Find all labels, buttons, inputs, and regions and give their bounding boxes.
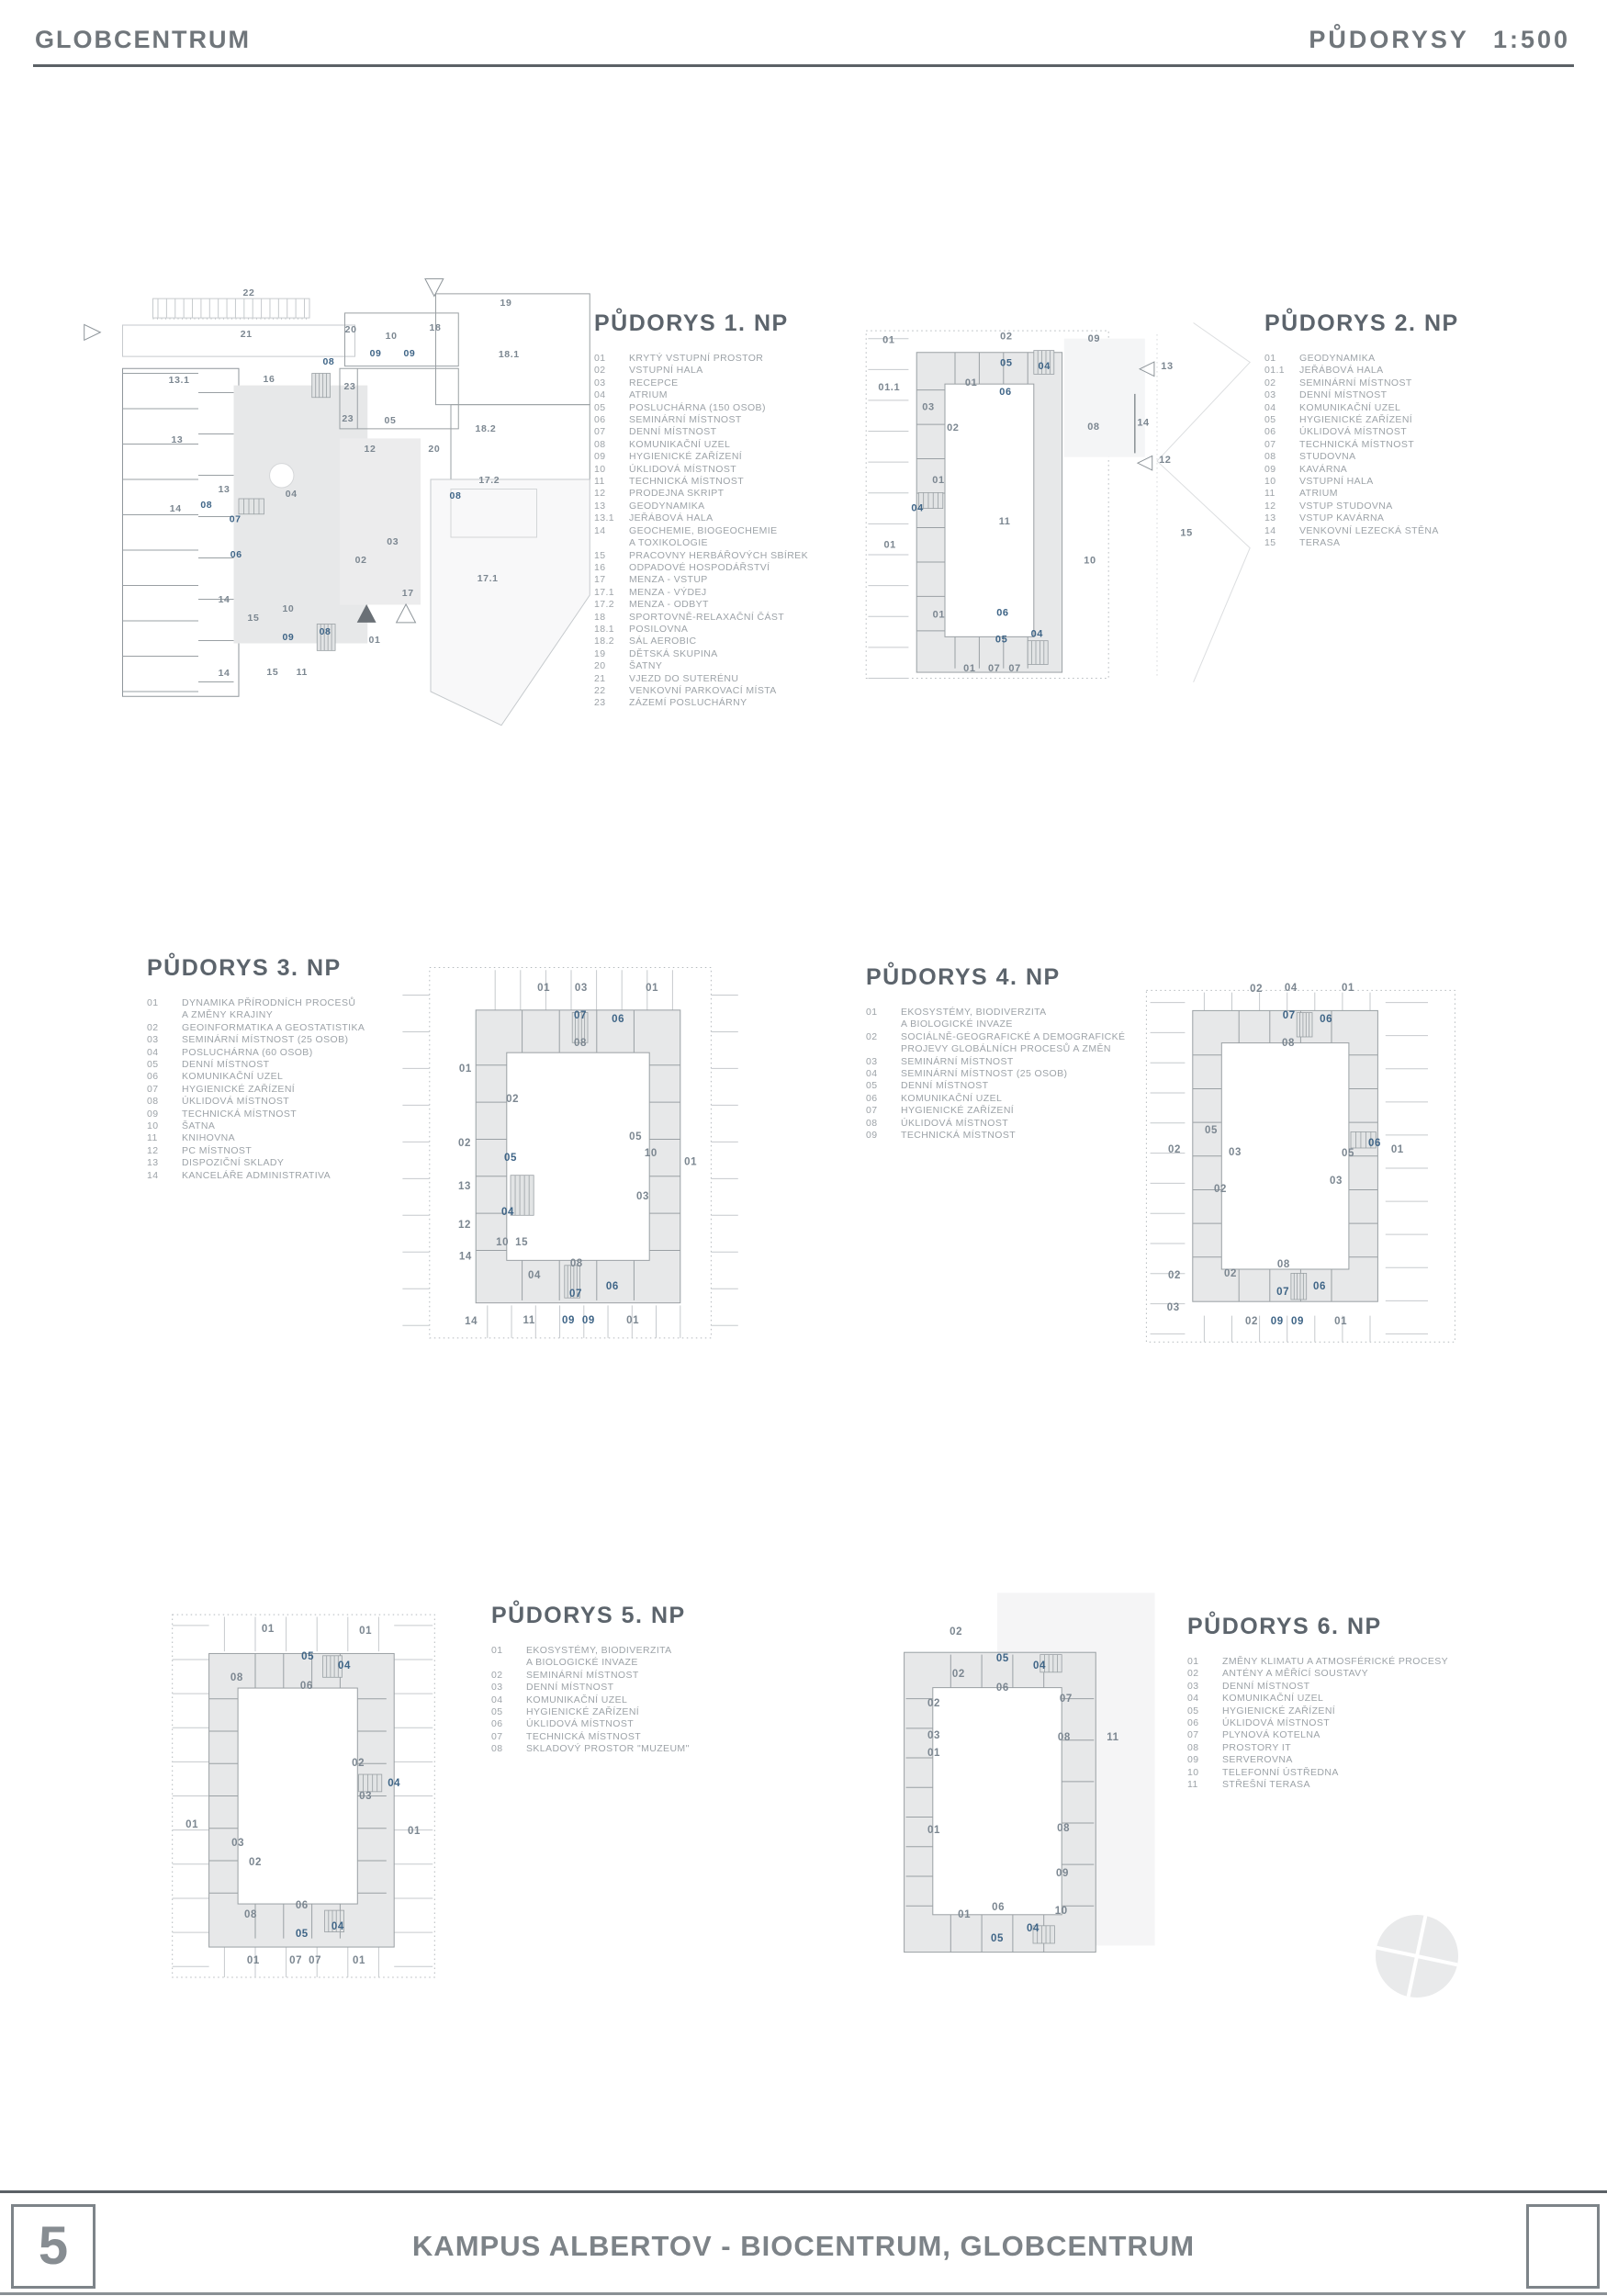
legend-item-number: 07 [491,1731,526,1743]
legend-item-name: DĚTSKÁ SKUPINA [629,648,718,660]
legend-item-name: DENNÍ MÍSTNOST [526,1682,613,1694]
legend-item: 14KANCELÁŘE ADMINISTRATIVA [147,1170,450,1182]
room-label: 01 [247,1955,260,1966]
legend-item: 07TECHNICKÁ MÍSTNOST [1264,439,1540,451]
legend-item-number: 06 [594,414,629,426]
room-label: 07 [1276,1287,1289,1298]
room-label: 01 [626,1315,639,1326]
legend-item: 04ATRIUM [594,389,870,401]
legend-item: 06KOMUNIKAČNÍ UZEL [866,1093,1187,1105]
legend-item-number: 18.1 [594,624,629,636]
legend-item-name: RECEPCE [629,377,679,389]
legend-item-number: 01 [1264,353,1299,365]
room-label: 05 [385,415,397,426]
legend-item: 03SEMINÁRNÍ MÍSTNOST (25 OSOB) [147,1034,450,1046]
legend-item: 03SEMINÁRNÍ MÍSTNOST [866,1056,1187,1068]
room-label: 12 [458,1220,471,1231]
legend-item-name: KOMUNIKAČNÍ UZEL [182,1071,283,1083]
legend-item: 03RECEPCE [594,377,870,389]
legend-item-number: 10 [1264,476,1299,488]
legend-item-number: 23 [594,697,629,709]
legend-item: 01EKOSYSTÉMY, BIODIVERZITA A BIOLOGICKÉ … [866,1007,1187,1031]
room-label: 06 [1320,1014,1332,1025]
legend-item-name: VENKOVNÍ LEZECKÁ STĚNA [1299,525,1439,537]
legend-item-number: 01 [147,997,182,1022]
legend-item: 13.1JEŘÁBOVÁ HALA [594,512,870,524]
legend-item-number: 01.1 [1264,365,1299,377]
legend-item: 05DENNÍ MÍSTNOST [866,1080,1187,1092]
plan-canvas-3: 0103010706080102020510010513030412101514… [395,845,781,1345]
legend-item-number: 10 [594,464,629,476]
room-label: 15 [266,667,278,678]
room-label: 09 [1291,1316,1304,1327]
drawing-sheet: GLOBCENTRUM PŮDORYSY1:500 22211920101818… [0,0,1607,2296]
room-label: 03 [387,536,399,547]
legend-item: 01.1JEŘÁBOVÁ HALA [1264,365,1540,377]
legend-item: 01KRYTÝ VSTUPNÍ PROSTOR [594,353,870,365]
room-label: 01.1 [878,382,900,393]
sheet-title-text: PŮDORYSY [1309,26,1469,53]
room-label: 05 [629,1131,642,1142]
room-label: 05 [1000,357,1012,368]
room-label: 04 [388,1778,400,1789]
legend-item: 06ÚKLIDOVÁ MÍSTNOST [1187,1717,1527,1729]
legend-plan-3: PŮDORYS 3. NP 01DYNAMIKA PŘÍRODNÍCH PROC… [147,955,450,1182]
legend-item-name: KOMUNIKAČNÍ UZEL [526,1694,627,1706]
room-label: 14 [219,668,230,679]
legend-item-number: 04 [1264,402,1299,414]
legend-item-name: SPORTOVNĚ-RELAXAČNÍ ČÁST [629,612,784,624]
legend-item: 09TECHNICKÁ MÍSTNOST [866,1130,1187,1142]
legend-item: 15TERASA [1264,537,1540,549]
legend-item-name: KANCELÁŘE ADMINISTRATIVA [182,1170,331,1182]
legend-title-5: PŮDORYS 5. NP [491,1603,794,1629]
room-label: 04 [501,1207,514,1218]
room-label: 17 [402,588,414,599]
room-label: 22 [243,287,255,298]
legend-item-number: 03 [491,1682,526,1694]
legend-item: 08SKLADOVÝ PROSTOR "MUZEUM" [491,1743,794,1755]
room-label: 06 [999,387,1011,398]
room-label: 11 [999,516,1011,527]
room-label: 20 [428,444,440,455]
legend-item: 23ZÁZEMÍ POSLUCHÁRNY [594,697,870,709]
room-label: 02 [1245,1316,1258,1327]
legend-item-number: 11 [594,476,629,488]
legend-item: 22VENKOVNÍ PARKOVACÍ MÍSTA [594,685,870,697]
legend-item: 14VENKOVNÍ LEZECKÁ STĚNA [1264,525,1540,537]
legend-item: 18SPORTOVNĚ-RELAXAČNÍ ČÁST [594,612,870,624]
legend-item: 06ÚKLIDOVÁ MÍSTNOST [1264,426,1540,438]
legend-item-name: KOMUNIKAČNÍ UZEL [1222,1693,1323,1705]
room-label: 15 [515,1237,528,1248]
room-label: 18.2 [476,423,497,434]
legend-item: 11STŘEŠNÍ TERASA [1187,1779,1527,1791]
room-label: 10 [282,603,294,614]
legend-item-number: 06 [147,1071,182,1083]
room-label: 01 [1342,983,1354,994]
legend-item-name: EKOSYSTÉMY, BIODIVERZITA A BIOLOGICKÉ IN… [901,1007,1047,1031]
legend-item-name: ODPADOVÉ HOSPODÁŘSTVÍ [629,562,770,574]
room-label: 07 [309,1955,321,1966]
legend-item-name: SERVEROVNA [1222,1754,1293,1766]
legend-item: 07DENNÍ MÍSTNOST [594,426,870,438]
legend-item-name: GEOINFORMATIKA A GEOSTATISTIKA [182,1022,365,1034]
legend-plan-2: PŮDORYS 2. NP 01GEODYNAMIKA01.1JEŘÁBOVÁ … [1264,310,1540,550]
legend-item-number: 01 [594,353,629,365]
legend-item-name: ATRIUM [1299,488,1338,500]
room-label: 08 [1282,1038,1295,1049]
legend-item-number: 03 [1187,1681,1222,1693]
legend-item-number: 22 [594,685,629,697]
legend-item-name: SOCIÁLNĚ-GEOGRAFICKÉ A DEMOGRAFICKÉ PROJ… [901,1031,1125,1056]
room-label: 03 [231,1838,244,1849]
room-label: 01 [958,1909,971,1920]
room-label: 13 [458,1181,471,1192]
legend-item-number: 20 [594,660,629,672]
legend-item-name: VENKOVNÍ PARKOVACÍ MÍSTA [629,685,777,697]
legend-item: 05HYGIENICKÉ ZAŘÍZENÍ [491,1706,794,1718]
room-label: 02 [927,1698,940,1709]
room-label: 04 [1033,1660,1046,1671]
legend-item: 07HYGIENICKÉ ZAŘÍZENÍ [866,1105,1187,1117]
plan-canvas-5: 0101050408060204030101030208060405010707… [101,1552,487,1984]
room-label: 14 [465,1316,478,1327]
legend-item-number: 11 [1187,1779,1222,1791]
legend-item-name: VJEZD DO SUTERÉNU [629,673,738,685]
legend-item: 02SOCIÁLNĚ-GEOGRAFICKÉ A DEMOGRAFICKÉ PR… [866,1031,1187,1056]
legend-item-number: 14 [1264,525,1299,537]
legend-item-number: 12 [1264,501,1299,512]
room-label: 02 [1000,332,1012,343]
legend-item-number: 13 [594,501,629,512]
room-label: 23 [344,381,356,392]
room-label: 05 [504,1153,517,1164]
room-label: 02 [249,1857,262,1868]
legend-item: 05HYGIENICKÉ ZAŘÍZENÍ [1264,414,1540,426]
legend-item: 09KAVÁRNA [1264,464,1540,476]
stamp-box [1526,2204,1600,2289]
legend-item-number: 18.2 [594,636,629,647]
legend-item-name: TECHNICKÁ MÍSTNOST [629,476,744,488]
legend-item-number: 10 [1187,1767,1222,1779]
room-label: 08 [200,500,212,511]
legend-item-name: DYNAMIKA PŘÍRODNÍCH PROCESŮ A ZMĚNY KRAJ… [182,997,355,1022]
legend-item: 06ÚKLIDOVÁ MÍSTNOST [491,1718,794,1730]
room-label: 14 [459,1251,472,1262]
legend-item-name: ŠATNA [182,1120,215,1132]
legend-item: 04KOMUNIKAČNÍ UZEL [491,1694,794,1706]
legend-item-name: KAVÁRNA [1299,464,1347,476]
legend-item-name: SEMINÁRNÍ MÍSTNOST [526,1670,639,1682]
room-label: 08 [1087,422,1099,433]
legend-item: 05DENNÍ MÍSTNOST [147,1059,450,1071]
room-label: 13 [1161,361,1173,372]
room-label: 07 [289,1955,302,1966]
legend-item-number: 21 [594,673,629,685]
legend-item-name: KOMUNIKAČNÍ UZEL [901,1093,1002,1105]
legend-item-name: TECHNICKÁ MÍSTNOST [1299,439,1414,451]
legend-item-number: 07 [866,1105,901,1117]
legend-item-name: GEOCHEMIE, BIOGEOCHEMIE A TOXIKOLOGIE [629,525,777,550]
legend-item-number: 11 [1264,488,1299,500]
legend-item-number: 02 [491,1670,526,1682]
legend-item-name: ÚKLIDOVÁ MÍSTNOST [526,1718,634,1730]
room-label: 13 [171,434,183,445]
room-label: 09 [282,632,294,643]
room-label: 01 [965,377,977,388]
legend-item-name: DENNÍ MÍSTNOST [629,426,716,438]
legend-item-name: KOMUNIKAČNÍ UZEL [1299,402,1400,414]
legend-item: 04POSLUCHÁRNA (60 OSOB) [147,1047,450,1059]
room-label: 10 [386,331,398,342]
room-label: 05 [301,1651,314,1662]
legend-item-name: SEMINÁRNÍ MÍSTNOST [629,414,742,426]
legend-items-1: 01KRYTÝ VSTUPNÍ PROSTOR02VSTUPNÍ HALA03R… [594,353,870,710]
legend-item-name: STŘEŠNÍ TERASA [1222,1779,1310,1791]
room-label: 08 [570,1258,583,1269]
room-label: 08 [574,1038,587,1049]
legend-item-number: 07 [1187,1729,1222,1741]
legend-item-name: MENZA - VÝDEJ [629,587,707,599]
legend-item-number: 10 [147,1120,182,1132]
legend-item-number: 08 [1264,451,1299,463]
legend-item-name: SEMINÁRNÍ MÍSTNOST [901,1056,1014,1068]
legend-item: 11TECHNICKÁ MÍSTNOST [594,476,870,488]
legend-item-number: 09 [147,1109,182,1120]
legend-item: 01ZMĚNY KLIMATU A ATMOSFÉRICKÉ PROCESY [1187,1656,1527,1668]
room-label: 08 [1058,1732,1071,1743]
legend-item-name: POSILOVNA [629,624,688,636]
legend-item-number: 04 [491,1694,526,1706]
legend-item: 02SEMINÁRNÍ MÍSTNOST [1264,377,1540,389]
room-label: 17.2 [478,475,500,486]
legend-item-name: HYGIENICKÉ ZAŘÍZENÍ [1222,1705,1335,1717]
legend-item-name: PLYNOVÁ KOTELNA [1222,1729,1320,1741]
legend-item: 07HYGIENICKÉ ZAŘÍZENÍ [147,1084,450,1096]
legend-item-name: HYGIENICKÉ ZAŘÍZENÍ [901,1105,1014,1117]
legend-item: 12PC MÍSTNOST [147,1145,450,1157]
legend-item: 08PROSTORY IT [1187,1742,1527,1754]
legend-item-number: 04 [1187,1693,1222,1705]
legend-item-number: 05 [1187,1705,1222,1717]
legend-item: 05POSLUCHÁRNA (150 OSOB) [594,402,870,414]
legend-item-name: ZÁZEMÍ POSLUCHÁRNY [629,697,747,709]
room-label: 13 [219,484,230,495]
room-label: 11 [297,667,308,678]
plan-canvas-1: 22211920101818.10909081613.123230518.213… [87,248,592,730]
legend-item-number: 15 [594,550,629,562]
room-label: 02 [355,555,367,566]
sheet-scale: 1:500 [1493,26,1570,53]
room-label: 06 [612,1014,624,1025]
room-label: 01 [646,983,658,994]
legend-item-number: 11 [147,1132,182,1144]
legend-plan-1: PŮDORYS 1. NP 01KRYTÝ VSTUPNÍ PROSTOR02V… [594,310,870,710]
room-label: 13.1 [169,375,190,386]
room-label: 11 [523,1315,534,1326]
room-label: 09 [403,348,415,359]
room-label: 02 [1168,1270,1181,1281]
legend-item-name: ÚKLIDOVÁ MÍSTNOST [1222,1717,1330,1729]
legend-item-number: 08 [594,439,629,451]
legend-item-name: PROSTORY IT [1222,1742,1291,1754]
project-brand: GLOBCENTRUM [35,26,251,54]
room-label: 07 [1283,1010,1296,1021]
room-label: 01 [185,1819,198,1830]
room-label: 05 [1342,1148,1354,1159]
legend-item-number: 08 [866,1118,901,1130]
room-label: 01 [262,1624,275,1635]
legend-item-name: MENZA - VSTUP [629,574,708,586]
legend-item-name: VSTUP STUDOVNA [1299,501,1393,512]
room-label: 08 [1057,1823,1070,1834]
legend-item: 09SERVEROVNA [1187,1754,1527,1766]
legend-item: 17.2MENZA - ODBYT [594,599,870,611]
legend-item-name: GEODYNAMIKA [1299,353,1376,365]
legend-item-number: 14 [147,1170,182,1182]
room-label: 05 [991,1933,1004,1944]
legend-item: 12VSTUP STUDOVNA [1264,501,1540,512]
legend-plan-5: PŮDORYS 5. NP 01EKOSYSTÉMY, BIODIVERZITA… [491,1603,794,1756]
legend-item-number: 12 [147,1145,182,1157]
legend-item: 09HYGIENICKÉ ZAŘÍZENÍ [594,451,870,463]
legend-item: 13DISPOZIČNÍ SKLADY [147,1157,450,1169]
legend-item-name: ÚKLIDOVÁ MÍSTNOST [629,464,736,476]
room-label: 09 [1271,1316,1284,1327]
legend-item-number: 06 [491,1718,526,1730]
legend-item-name: SEMINÁRNÍ MÍSTNOST (25 OSOB) [182,1034,348,1046]
room-label: 02 [952,1669,965,1680]
legend-item-name: HYGIENICKÉ ZAŘÍZENÍ [182,1084,295,1096]
room-label: 06 [300,1681,313,1692]
legend-item-name: ÚKLIDOVÁ MÍSTNOST [1299,426,1407,438]
legend-item: 07PLYNOVÁ KOTELNA [1187,1729,1527,1741]
legend-item-number: 09 [594,451,629,463]
legend-title-6: PŮDORYS 6. NP [1187,1614,1527,1640]
room-label: 04 [338,1660,351,1671]
room-label: 15 [1180,527,1192,538]
legend-item: 04KOMUNIKAČNÍ UZEL [1264,402,1540,414]
room-label: 10 [1084,555,1096,566]
legend-item-name: POSLUCHÁRNA (150 OSOB) [629,402,766,414]
legend-item-number: 04 [594,389,629,401]
legend-item-number: 17.1 [594,587,629,599]
legend-item: 08ÚKLIDOVÁ MÍSTNOST [866,1118,1187,1130]
legend-item-name: TELEFONNÍ ÚSTŘEDNA [1222,1767,1339,1779]
legend-item-number: 05 [491,1706,526,1718]
legend-item: 03DENNÍ MÍSTNOST [1187,1681,1527,1693]
legend-title-1: PŮDORYS 1. NP [594,310,870,337]
legend-item: 13VSTUP KAVÁRNA [1264,512,1540,524]
footer-rule [0,2190,1607,2193]
legend-item: 05HYGIENICKÉ ZAŘÍZENÍ [1187,1705,1527,1717]
legend-item-number: 07 [147,1084,182,1096]
legend-item-number: 01 [866,1007,901,1031]
legend-item: 17.1MENZA - VÝDEJ [594,587,870,599]
legend-item-name: GEODYNAMIKA [629,501,705,512]
room-label: 01 [684,1156,697,1167]
room-label: 06 [1368,1138,1381,1149]
room-label: 04 [332,1921,344,1932]
room-label: 09 [562,1315,575,1326]
header-rule [33,64,1574,67]
legend-item-number: 07 [594,426,629,438]
legend-items-3: 01DYNAMIKA PŘÍRODNÍCH PROCESŮ A ZMĚNY KR… [147,997,450,1182]
legend-item-number: 13 [147,1157,182,1169]
legend-title-3: PŮDORYS 3. NP [147,955,450,982]
legend-item-number: 02 [594,365,629,377]
room-label: 01 [459,1064,472,1075]
room-label: 01 [537,983,550,994]
legend-item-number: 19 [594,648,629,660]
room-label: 18 [430,322,442,333]
legend-item-number: 13.1 [594,512,629,524]
legend-item-name: POSLUCHÁRNA (60 OSOB) [182,1047,313,1059]
legend-item-number: 07 [1264,439,1299,451]
room-label: 18.1 [499,349,520,360]
legend-item-name: ANTÉNY A MĚŘÍCÍ SOUSTAVY [1222,1668,1368,1680]
legend-item-number: 08 [147,1096,182,1108]
room-label: 20 [345,324,357,335]
legend-items-4: 01EKOSYSTÉMY, BIODIVERZITA A BIOLOGICKÉ … [866,1007,1187,1142]
legend-item-number: 09 [1264,464,1299,476]
legend-item-number: 01 [1187,1656,1222,1668]
legend-item: 04SEMINÁRNÍ MÍSTNOST (25 OSOB) [866,1068,1187,1080]
legend-item-number: 16 [594,562,629,574]
compass-icon [1373,1912,1461,2000]
room-label: 14 [219,594,230,605]
room-label: 04 [528,1270,541,1281]
room-label: 03 [927,1730,940,1741]
legend-item: 10ÚKLIDOVÁ MÍSTNOST [594,464,870,476]
legend-item: 06SEMINÁRNÍ MÍSTNOST [594,414,870,426]
room-label: 02 [1224,1268,1237,1279]
legend-item: 17MENZA - VSTUP [594,574,870,586]
legend-plan-6: PŮDORYS 6. NP 01ZMĚNY KLIMATU A ATMOSFÉR… [1187,1614,1527,1791]
legend-item: 02VSTUPNÍ HALA [594,365,870,377]
room-label: 01 [932,475,944,486]
room-label: 08 [450,490,462,501]
legend-item-name: VSTUPNÍ HALA [1299,476,1374,488]
room-label: 02 [1214,1184,1227,1195]
legend-item: 06KOMUNIKAČNÍ UZEL [147,1071,450,1083]
legend-plan-4: PŮDORYS 4. NP 01EKOSYSTÉMY, BIODIVERZITA… [866,964,1187,1142]
room-label: 16 [264,374,275,385]
legend-item-number: 01 [491,1645,526,1670]
room-label: 01 [1334,1316,1347,1327]
legend-item: 07TECHNICKÁ MÍSTNOST [491,1731,794,1743]
legend-item-name: ŠATNY [629,660,662,672]
room-label: 09 [1056,1868,1069,1879]
legend-item: 10VSTUPNÍ HALA [1264,476,1540,488]
legend-item: 11KNIHOVNA [147,1132,450,1144]
room-label: 02 [352,1758,365,1769]
bottom-edge-rule [0,2292,1607,2295]
legend-item-name: PC MÍSTNOST [182,1145,252,1157]
legend-item-number: 05 [147,1059,182,1071]
legend-item: 09TECHNICKÁ MÍSTNOST [147,1109,450,1120]
legend-item: 03DENNÍ MÍSTNOST [491,1682,794,1694]
room-label: 05 [1205,1125,1218,1136]
legend-item-name: SKLADOVÝ PROSTOR "MUZEUM" [526,1743,690,1755]
room-label: 19 [500,298,512,309]
room-label: 05 [296,1929,309,1940]
legend-item: 18.2SÁL AEROBIC [594,636,870,647]
room-label: 08 [320,626,332,637]
legend-item-number: 06 [1187,1717,1222,1729]
legend-item-name: JEŘÁBOVÁ HALA [1299,365,1384,377]
